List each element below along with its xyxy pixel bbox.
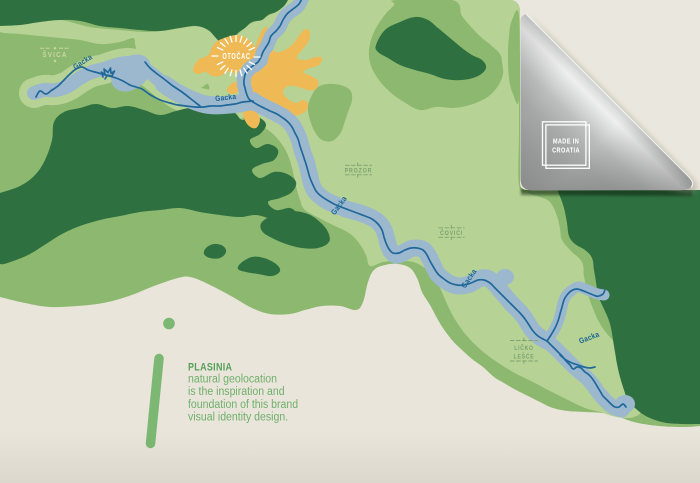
svg-text:is the inspiration and: is the inspiration and xyxy=(188,386,285,399)
svg-text:foundation of this brand: foundation of this brand xyxy=(188,398,298,411)
svg-text:visual identity design.: visual identity design. xyxy=(188,411,288,424)
svg-text:LEŠĆE: LEŠĆE xyxy=(514,352,535,361)
svg-text:ČOVIĆI: ČOVIĆI xyxy=(440,228,463,237)
svg-text:ŠVICA: ŠVICA xyxy=(42,50,67,60)
svg-text:natural geolocation: natural geolocation xyxy=(188,373,277,386)
svg-text:LIČKO: LIČKO xyxy=(514,344,534,352)
svg-text:MADE IN: MADE IN xyxy=(553,138,579,146)
svg-text:CROATIA: CROATIA xyxy=(552,147,580,155)
svg-text:PROZOR: PROZOR xyxy=(345,168,373,175)
svg-text:OTOČAC: OTOČAC xyxy=(222,51,250,61)
